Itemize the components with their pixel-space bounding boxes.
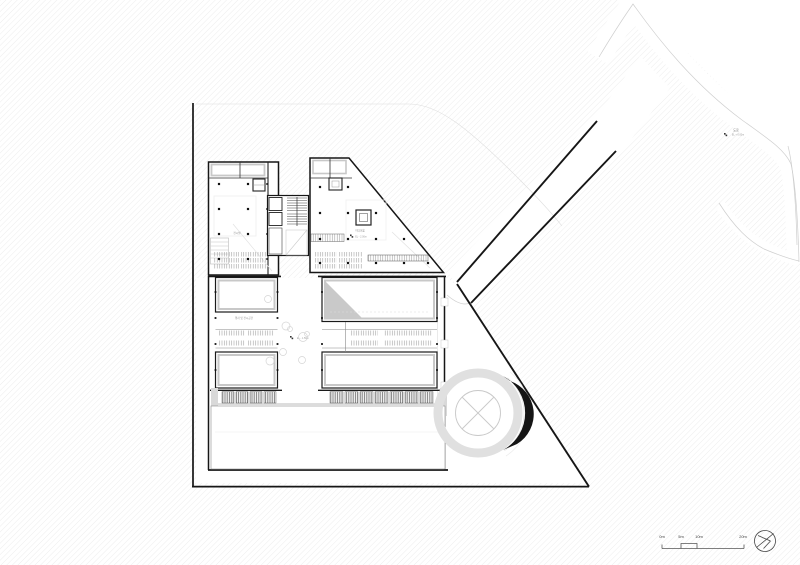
scale-5m: 5m: [678, 534, 684, 539]
lower-right-room-bottom: [322, 352, 437, 388]
shaft-square: [356, 210, 371, 225]
lower-floor-plan: 행사 및 전시공간 EL - 1.50m: [208, 276, 448, 470]
elevator-core-2: [269, 213, 282, 226]
road-level-label: EL + 0.00m: [732, 134, 744, 137]
shelf-ticks: [339, 258, 362, 263]
upper-right-level-label: EL - 2.00m: [355, 236, 367, 239]
shelf-ticks: [314, 264, 337, 269]
upper-right-room-label: 미디어홀: [355, 229, 365, 233]
upper-left-room-label: 전시실: [233, 231, 241, 235]
shelf-ticks: [241, 252, 267, 257]
scale-10m: 10m: [695, 534, 703, 539]
scale-0m: 0m: [659, 534, 665, 539]
shelf-ticks: [339, 252, 362, 257]
road-name-label: 도로: [733, 128, 739, 132]
shelf-ticks: [213, 264, 239, 269]
elevator-right: [329, 178, 342, 190]
plaza: [211, 406, 445, 469]
lower-left-room-label: 행사 및 전시공간: [235, 316, 254, 320]
shelf-ticks: [314, 258, 337, 263]
lower-left-room-top: [216, 278, 278, 313]
elevator-core-1: [269, 198, 282, 211]
shelf-ticks: [339, 264, 362, 269]
shelf-ticks: [314, 252, 337, 257]
shelf-ticks: [213, 258, 239, 263]
shelf-ticks: [241, 258, 267, 263]
drawing-sheet: 전시실 미디어홀 EL - 2.00m: [0, 0, 800, 565]
floor-plan-canvas: 전시실 미디어홀 EL - 2.00m: [0, 0, 800, 565]
shelf-ticks: [241, 264, 267, 269]
shelf-ticks: [213, 252, 239, 257]
scale-20m: 20m: [739, 534, 747, 539]
